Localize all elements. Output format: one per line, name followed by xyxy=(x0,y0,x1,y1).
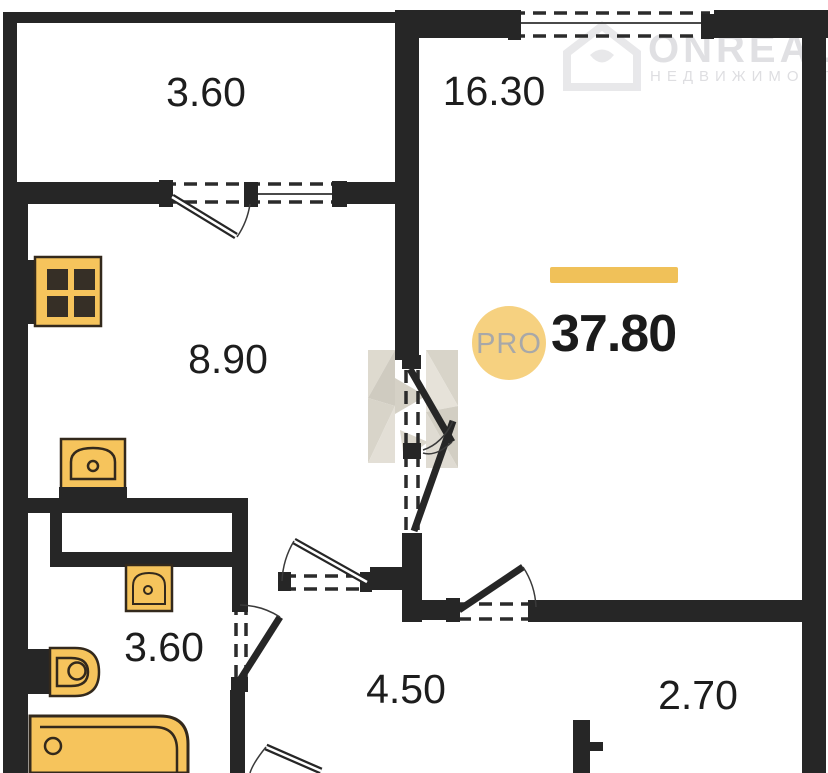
room-label-wardrobe: 2.70 xyxy=(658,672,738,718)
kitchen-sink-icon xyxy=(59,439,127,500)
wall xyxy=(402,533,422,546)
door-post xyxy=(159,180,173,207)
door-post xyxy=(278,572,291,591)
window-post xyxy=(701,14,714,39)
wall xyxy=(395,10,513,38)
stove-icon xyxy=(17,257,101,326)
door-post xyxy=(232,597,248,612)
floor-plan: ONREALT НЕДВИЖИМОСТЬ xyxy=(0,0,828,773)
wall xyxy=(370,567,403,590)
bathtub-icon xyxy=(30,716,188,773)
doors xyxy=(172,197,536,773)
window-post xyxy=(508,10,521,40)
door-post xyxy=(446,598,460,622)
fixtures xyxy=(17,257,188,773)
wall xyxy=(50,513,62,554)
door-post xyxy=(244,182,258,207)
wall xyxy=(537,600,803,622)
wall xyxy=(573,720,590,773)
door-post xyxy=(332,181,347,207)
room-label-bathroom: 3.60 xyxy=(124,624,204,670)
total-area-group: 37.80 PRO xyxy=(472,267,678,380)
wall xyxy=(395,12,419,360)
room-label-hallway: 4.50 xyxy=(366,666,446,712)
wall xyxy=(802,10,826,773)
wall xyxy=(232,513,248,603)
room-label-balcony: 3.60 xyxy=(166,69,246,115)
wall xyxy=(3,12,418,23)
door-stop xyxy=(403,443,421,459)
room-label-kitchen: 8.90 xyxy=(188,336,268,382)
wall xyxy=(28,498,248,513)
bathroom-door-icon xyxy=(240,605,280,680)
entrance-door-icon xyxy=(250,747,321,773)
wall xyxy=(3,12,17,204)
floor-plan-image: ONREALT НЕДВИЖИМОСТЬ xyxy=(0,0,828,773)
toilet-icon xyxy=(28,648,99,696)
wall xyxy=(230,690,245,773)
wall xyxy=(588,742,603,751)
total-area-highlight xyxy=(550,267,678,283)
wall xyxy=(402,355,421,369)
door-post xyxy=(528,600,541,622)
wall xyxy=(3,182,161,204)
total-area-value: 37.80 xyxy=(551,305,676,363)
bathroom-sink-icon xyxy=(124,556,172,611)
pro-badge-label: PRO xyxy=(476,328,542,360)
room-label-living: 16.30 xyxy=(443,68,546,114)
watermark-subtitle-text: НЕДВИЖИМОСТЬ xyxy=(650,68,828,85)
